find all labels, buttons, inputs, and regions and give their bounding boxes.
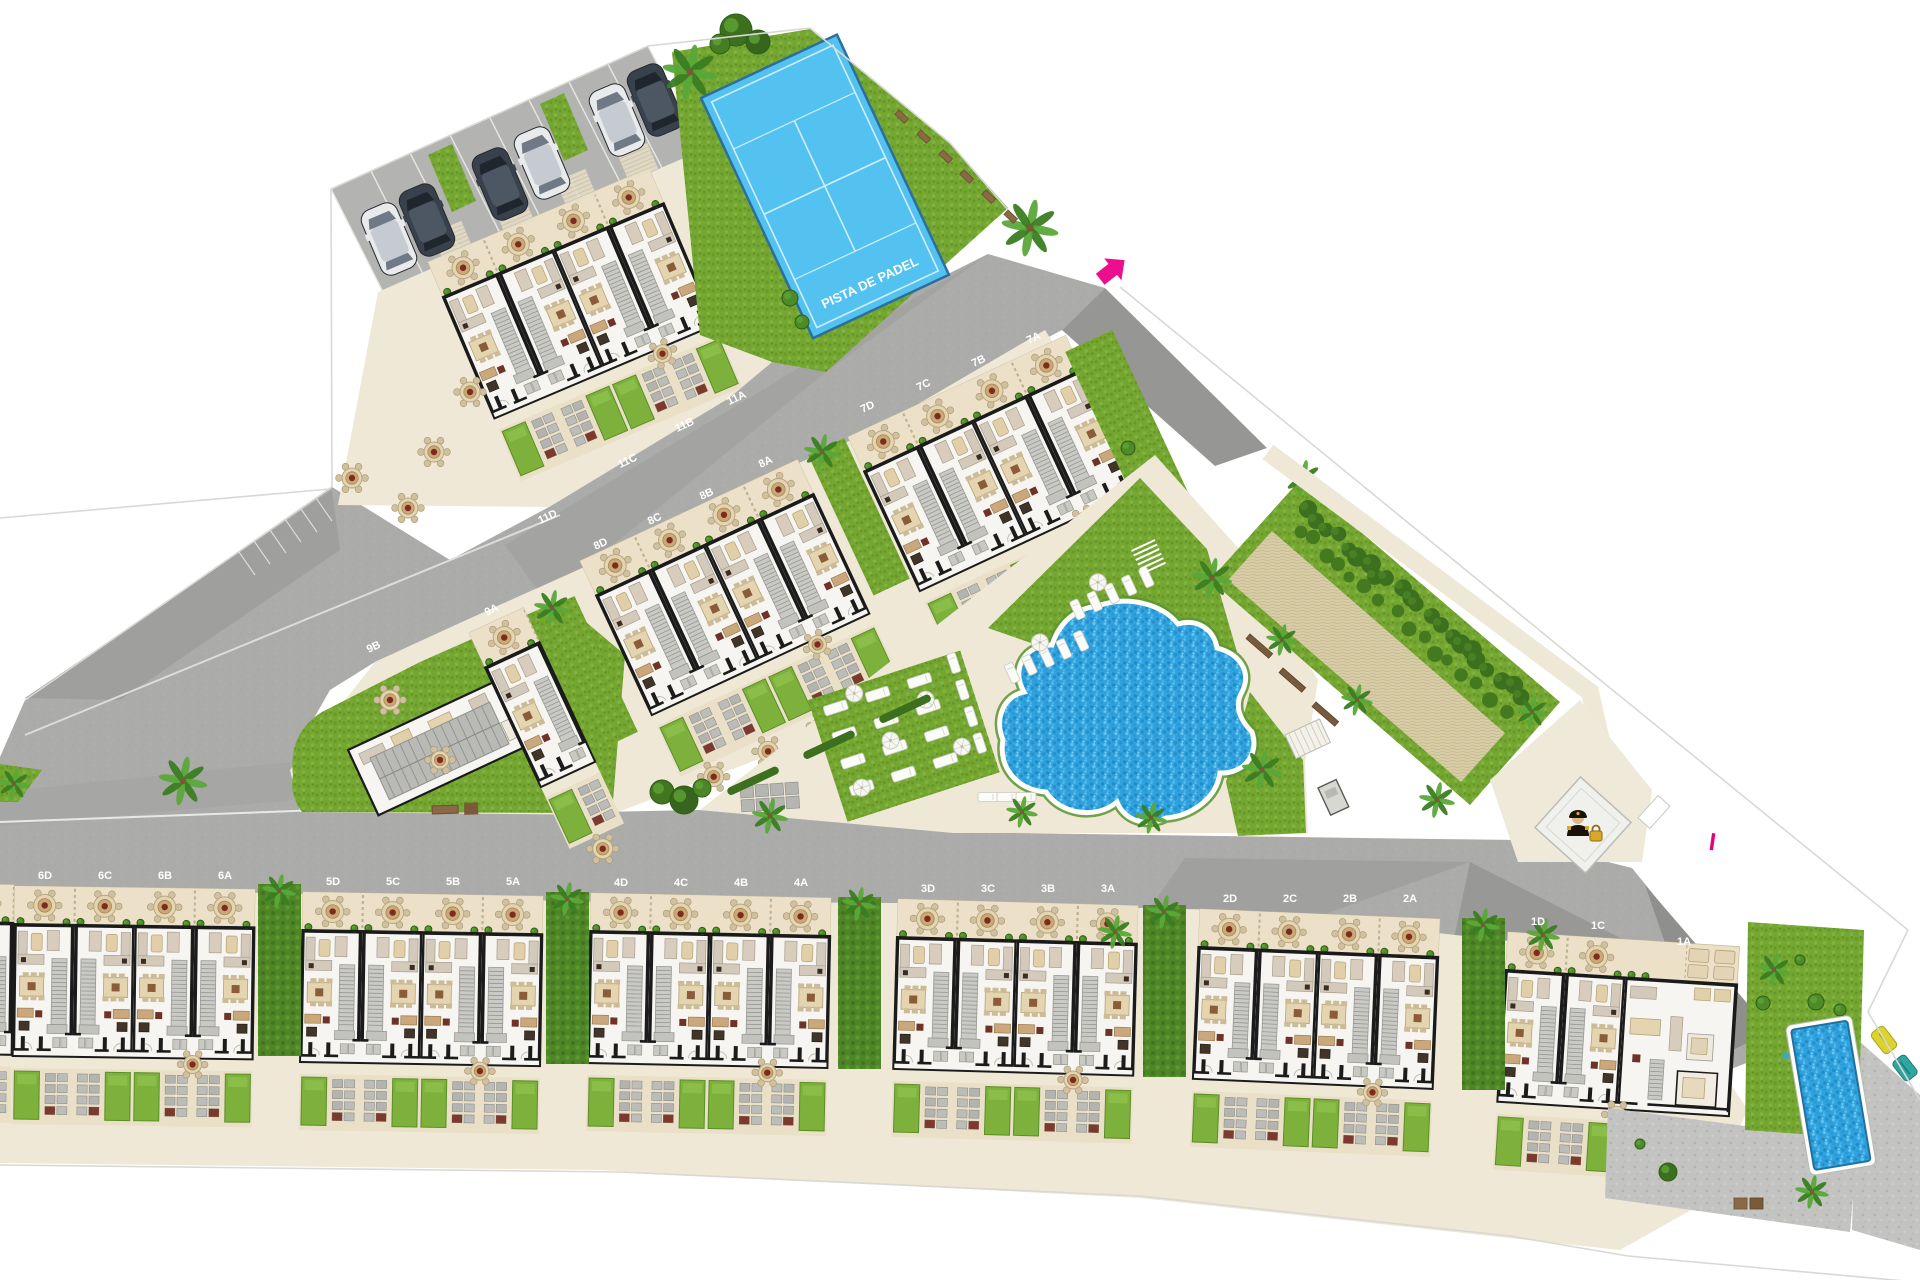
svg-text:3A: 3A: [1101, 883, 1115, 895]
svg-text:3D: 3D: [921, 883, 935, 895]
svg-text:5C: 5C: [386, 876, 400, 888]
svg-text:4B: 4B: [734, 877, 748, 889]
svg-text:3B: 3B: [1041, 883, 1055, 895]
svg-text:1D: 1D: [1531, 916, 1545, 928]
svg-text:3C: 3C: [981, 883, 995, 895]
svg-text:6A: 6A: [218, 870, 232, 882]
svg-text:5B: 5B: [446, 876, 460, 888]
svg-text:4A: 4A: [794, 877, 808, 889]
svg-text:2D: 2D: [1223, 893, 1237, 905]
svg-text:4D: 4D: [614, 877, 628, 889]
svg-text:2A: 2A: [1403, 893, 1417, 905]
svg-text:5D: 5D: [326, 876, 340, 888]
svg-text:1C: 1C: [1591, 920, 1605, 932]
svg-text:5A: 5A: [506, 876, 520, 888]
svg-text:2C: 2C: [1283, 893, 1297, 905]
svg-text:6B: 6B: [158, 870, 172, 882]
svg-text:6C: 6C: [98, 870, 112, 882]
svg-text:4C: 4C: [674, 877, 688, 889]
svg-text:1A: 1A: [1677, 936, 1691, 948]
svg-text:2B: 2B: [1343, 893, 1357, 905]
svg-text:6D: 6D: [38, 870, 52, 882]
